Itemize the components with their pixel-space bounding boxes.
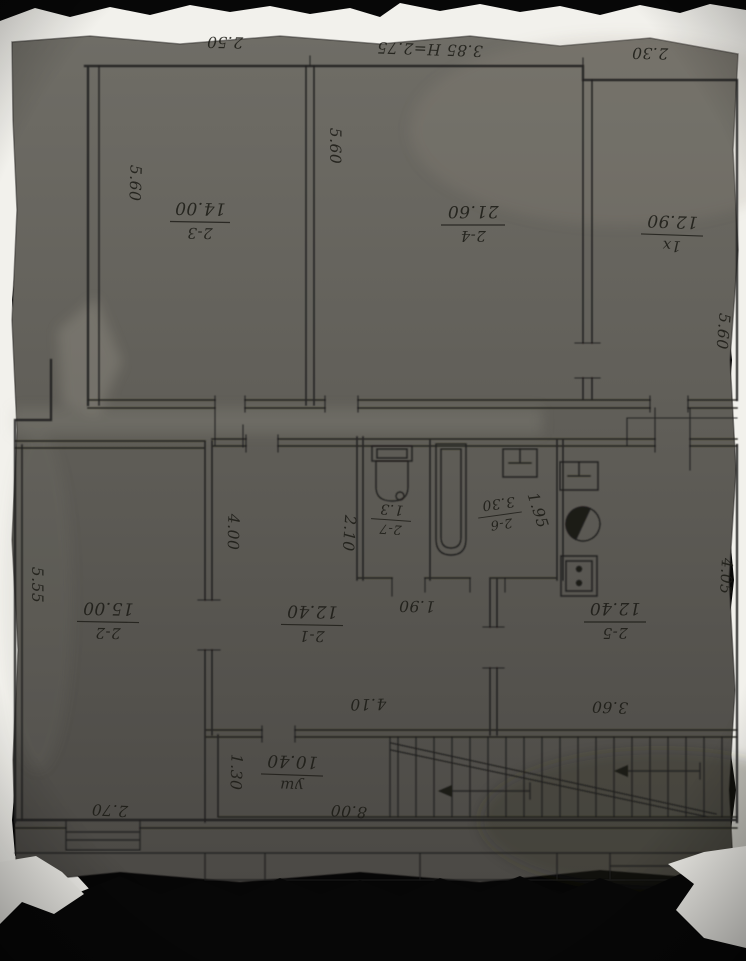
floor-plan-photo: 2.50 3.85 Н=2.75 2.30 5.60 5.60 5.60 4.0… [0, 0, 746, 961]
vignette-overlay [0, 0, 746, 961]
floor-plan-canvas: 2.50 3.85 Н=2.75 2.30 5.60 5.60 5.60 4.0… [0, 0, 746, 961]
